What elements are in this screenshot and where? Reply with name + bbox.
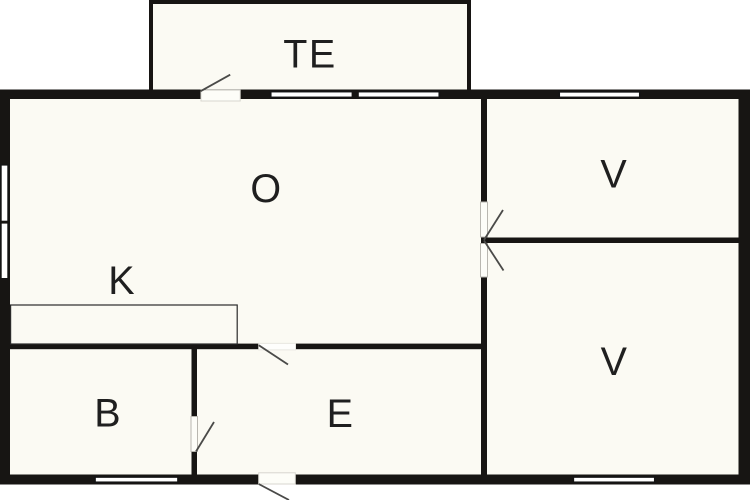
svg-text:E: E: [327, 392, 353, 436]
svg-text:O: O: [250, 167, 281, 211]
svg-text:V: V: [601, 340, 628, 384]
svg-text:V: V: [600, 153, 627, 197]
svg-text:TE: TE: [283, 32, 336, 76]
svg-text:B: B: [94, 392, 120, 436]
svg-text:K: K: [108, 259, 134, 303]
